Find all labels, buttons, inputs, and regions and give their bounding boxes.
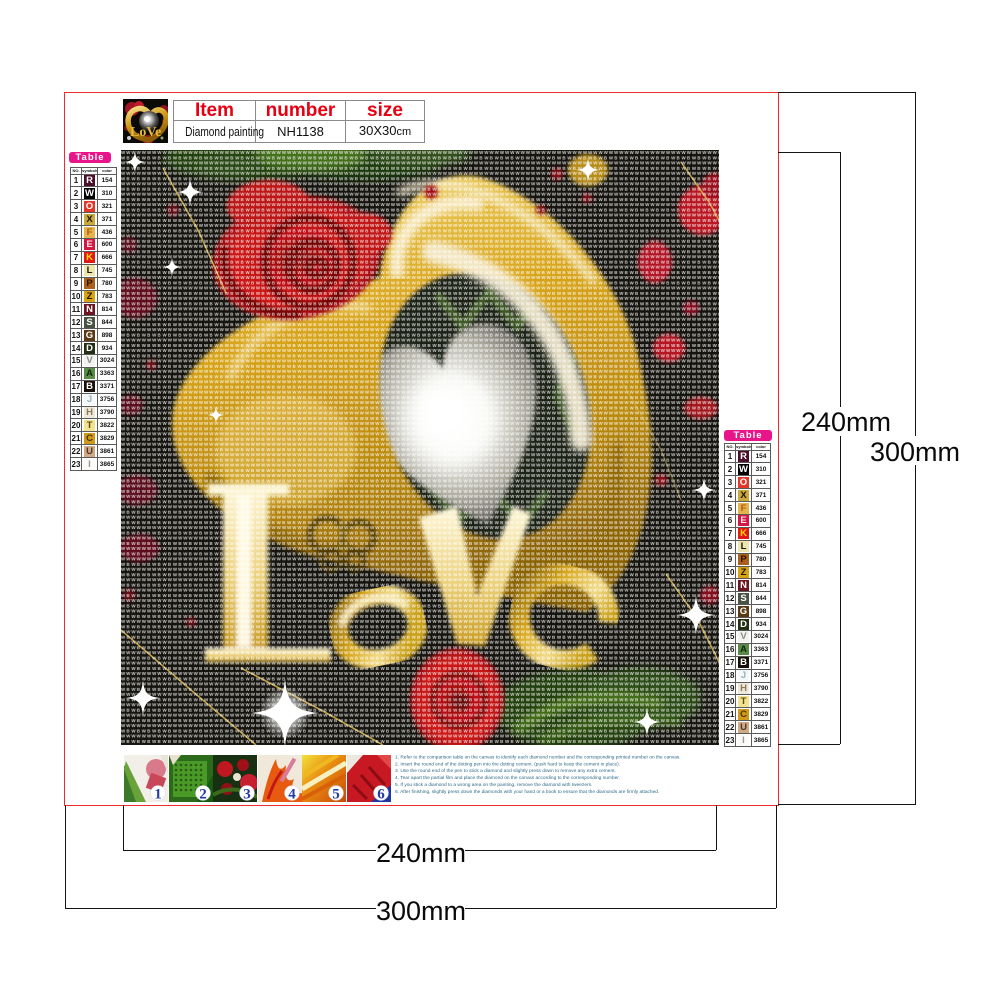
svg-text:4: 4 <box>288 787 296 803</box>
svg-text:1: 1 <box>154 787 162 803</box>
svg-text:6: 6 <box>377 787 385 803</box>
svg-text:3: 3 <box>243 787 251 803</box>
svg-text:2: 2 <box>199 787 207 803</box>
svg-text:LoVe: LoVe <box>130 125 161 140</box>
svg-text:5: 5 <box>332 787 340 803</box>
